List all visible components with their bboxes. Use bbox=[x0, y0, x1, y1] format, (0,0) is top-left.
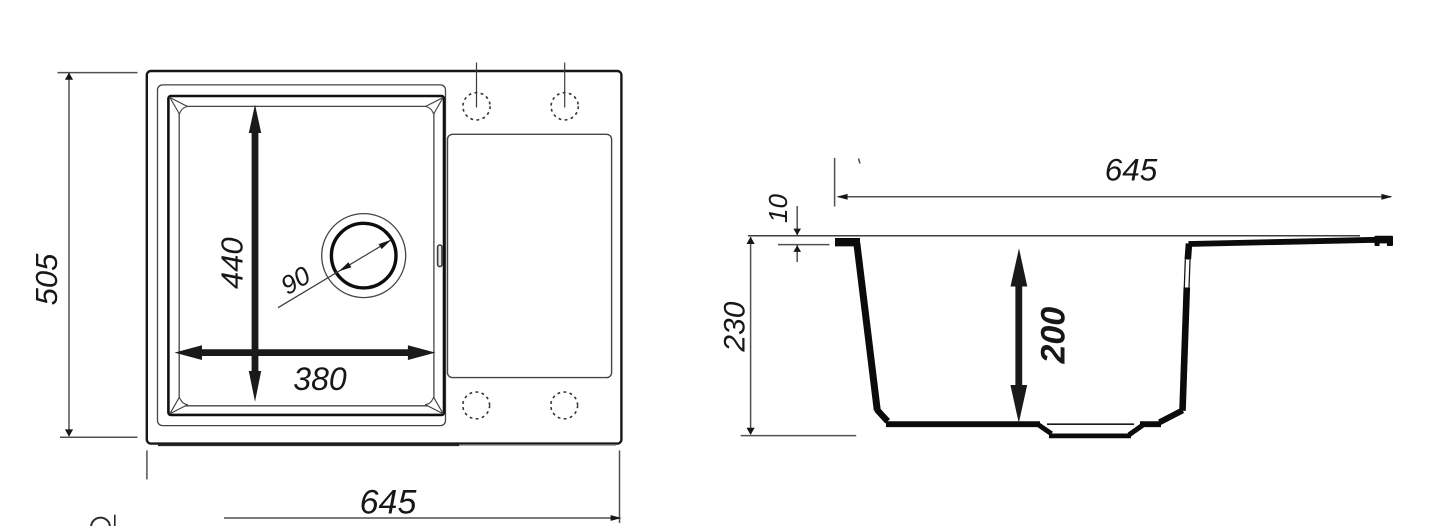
svg-text:10: 10 bbox=[763, 194, 793, 223]
svg-text:440: 440 bbox=[215, 237, 250, 289]
svg-text:200: 200 bbox=[1035, 307, 1073, 365]
svg-text:645: 645 bbox=[1105, 152, 1158, 188]
svg-text:505: 505 bbox=[29, 253, 64, 305]
svg-text:230: 230 bbox=[719, 301, 752, 352]
svg-text:645: 645 bbox=[360, 484, 417, 522]
svg-text:90: 90 bbox=[275, 260, 316, 301]
svg-text:380: 380 bbox=[293, 361, 347, 397]
